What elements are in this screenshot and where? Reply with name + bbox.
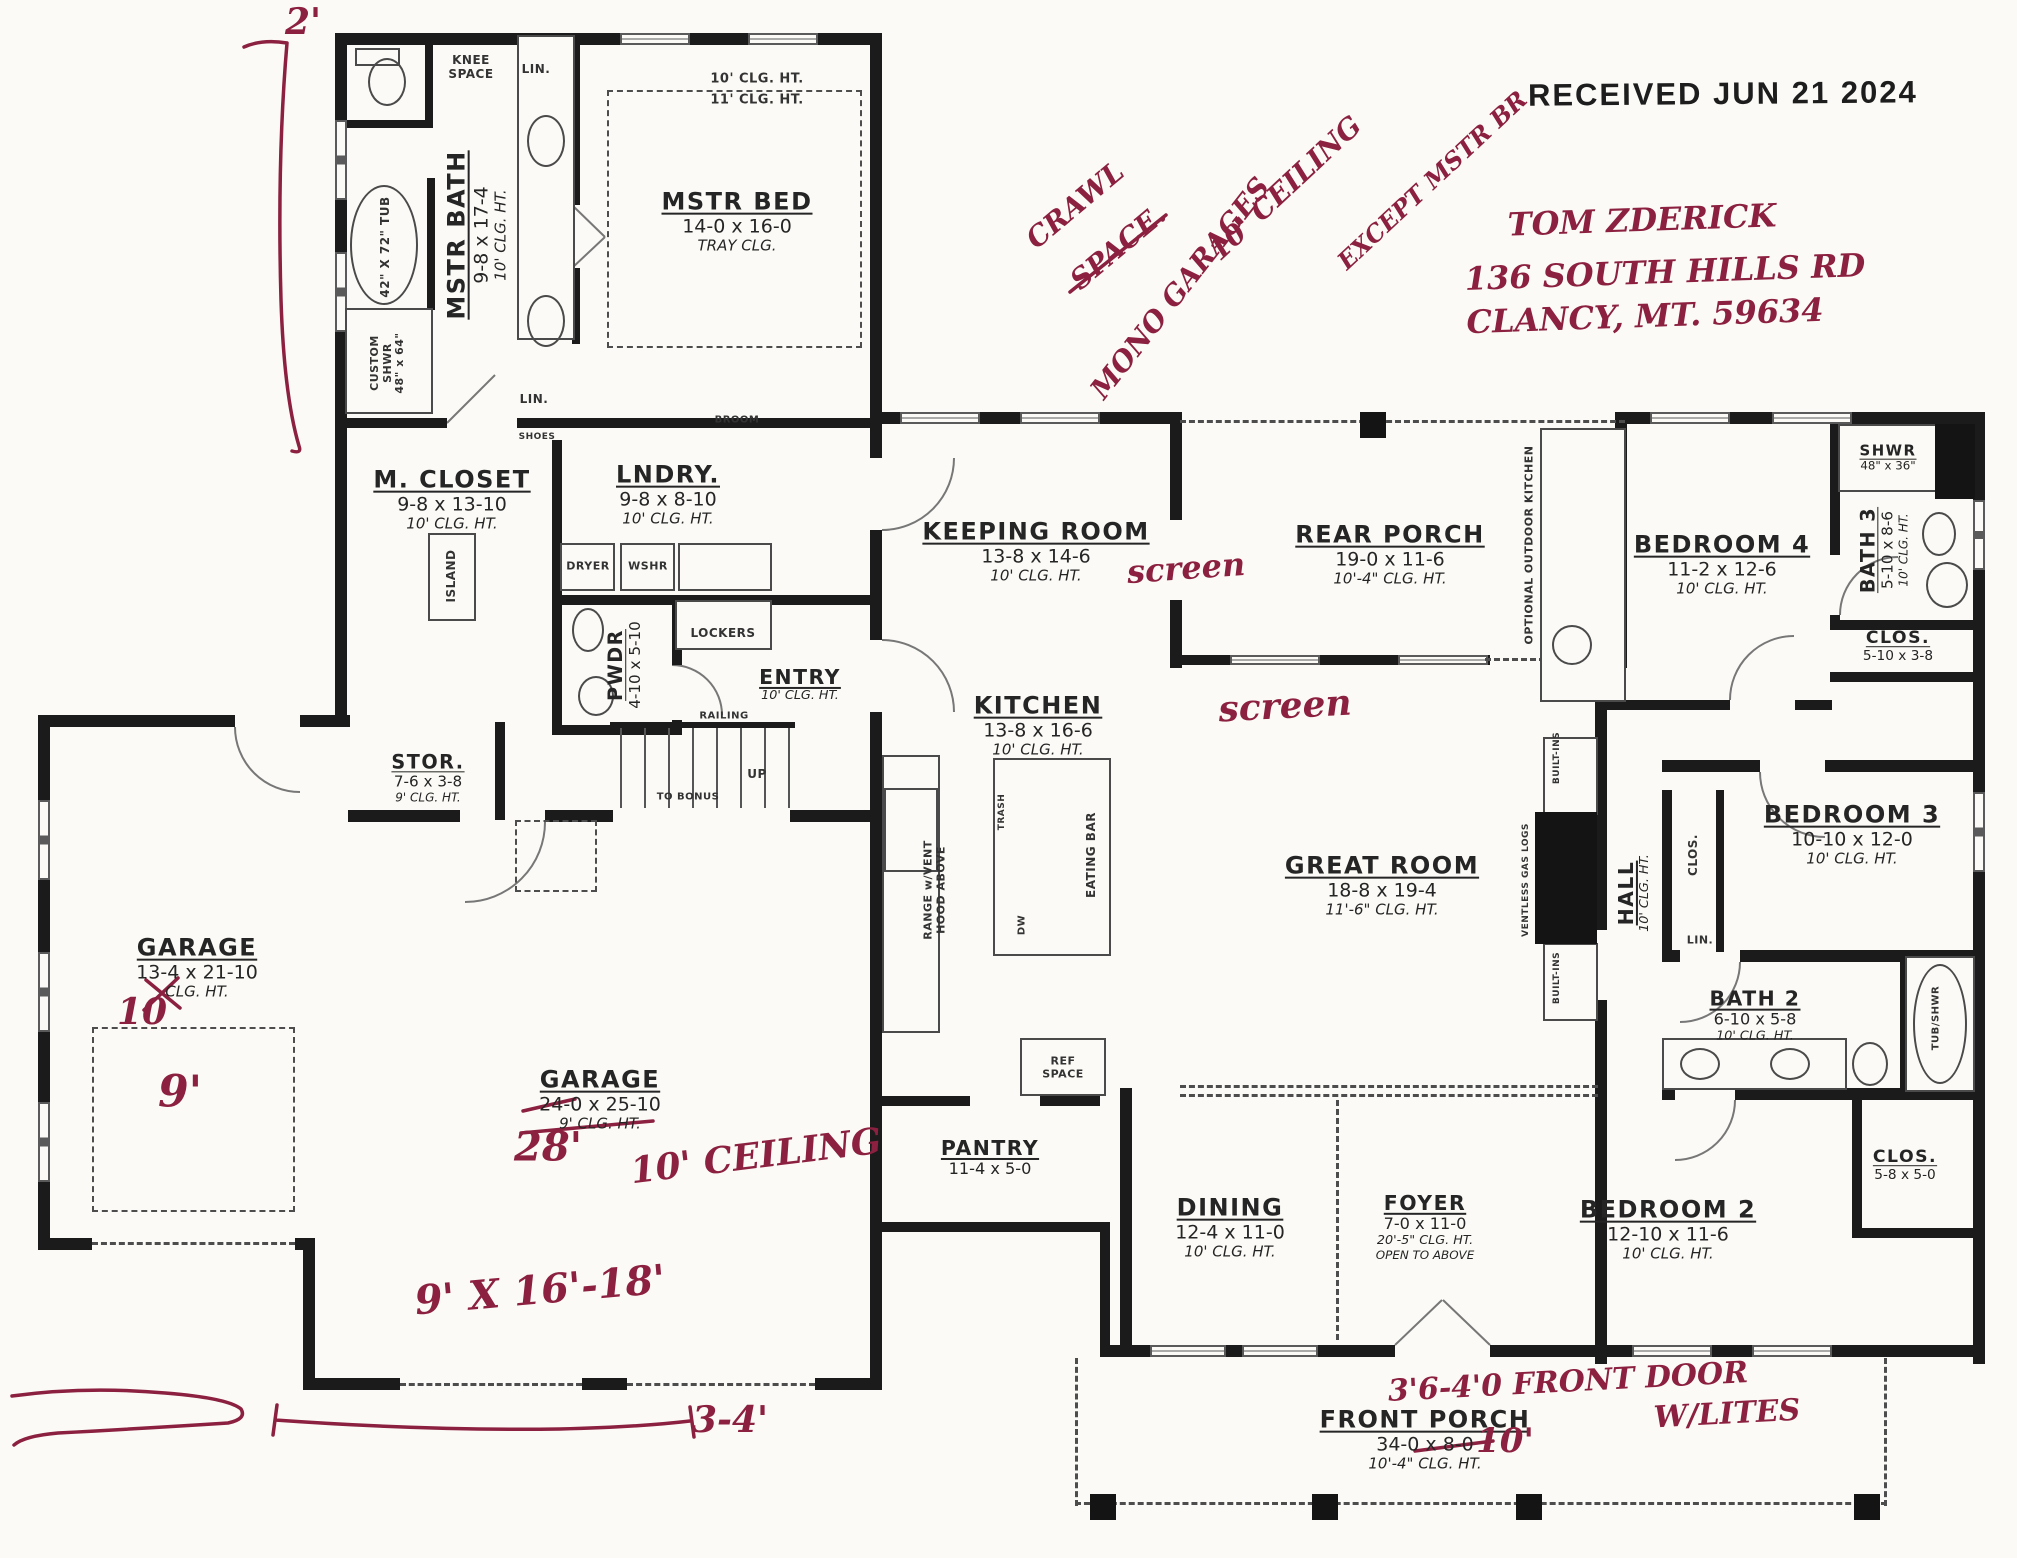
annotation-owner-name: TOM ZDERICK: [1507, 196, 1777, 243]
annotation-garage-door-size: 9' X 16'-18': [413, 1256, 668, 1325]
solid-mass: [1935, 424, 1975, 499]
room-label-dining: DINING12-4 x 11-010' CLG. HT.: [1175, 1195, 1285, 1262]
room-clg: 10' CLG. HT.: [1710, 1030, 1801, 1045]
label-up: UP: [747, 768, 767, 782]
fixture-oval: [572, 608, 604, 652]
label-island: ISLAND: [445, 549, 459, 602]
wall-segment: [38, 715, 235, 727]
window-marker: [38, 952, 50, 1032]
room-label-clos-bath3: CLOS.5-10 x 3-8: [1863, 629, 1933, 665]
label-ref-space: REF SPACE: [1042, 1055, 1084, 1080]
front-door-leaves: [1395, 1300, 1490, 1345]
door-arc: [1675, 1100, 1735, 1160]
room-name: FOYER: [1376, 1192, 1474, 1215]
fixture-oval: [527, 115, 565, 167]
room-clg: 10' CLG. HT.: [616, 511, 720, 528]
label-shoes: SHOES: [519, 432, 556, 442]
room-name: PANTRY: [941, 1137, 1039, 1160]
label-built-ins-bottom: BUILT-INS: [1552, 952, 1562, 1004]
window-marker: [620, 33, 690, 45]
label-custom-shwr: CUSTOM SHWR 48" x 64": [369, 332, 407, 393]
solid-mass: [1312, 1494, 1338, 1520]
annotation-screen-1: screen: [1126, 545, 1247, 591]
dashed-edge: [1884, 1358, 1888, 1506]
wall-segment: [610, 722, 795, 728]
wall-segment: [1852, 1098, 1862, 1233]
stair-tread: [788, 728, 790, 808]
annotation-screen-2: screen: [1217, 682, 1352, 731]
room-label-clos-bed2: CLOS.5-8 x 5-0: [1873, 1148, 1937, 1184]
wall-segment: [1662, 760, 1760, 772]
window-marker: [38, 1102, 50, 1182]
annotation-garage-left-10: 10: [117, 991, 167, 1033]
room-name: M. CLOSET: [373, 467, 530, 495]
label-built-ins-top: BUILT-INS: [1552, 732, 1562, 784]
room-dims: 10-10 x 12-0: [1764, 829, 1940, 851]
wall-segment: [1825, 760, 1976, 772]
room-clg: 9' CLG. HT.: [391, 791, 464, 805]
wall-segment: [38, 1238, 92, 1250]
room-clg: 10'-4" CLG. HT.: [1295, 571, 1484, 588]
room-dims: 6-10 x 5-8: [1710, 1011, 1801, 1030]
wall-segment: [1040, 1096, 1100, 1106]
window-marker: [1150, 1345, 1226, 1357]
wall-segment: [1662, 950, 1680, 962]
annotation-garage-28: 28': [514, 1124, 582, 1171]
room-dims: 5-10 x 3-8: [1863, 649, 1933, 665]
room-dims: 14-0 x 16-0: [662, 216, 813, 238]
room-dims: 19-0 x 11-6: [1295, 549, 1484, 571]
room-clg: 10' CLG. HT.: [1897, 507, 1911, 593]
room-clg: 10' CLG. HT.: [922, 568, 1149, 585]
room-name: BEDROOM 4: [1634, 532, 1810, 560]
label-railing: RAILING: [699, 710, 748, 722]
window-marker: [1242, 1345, 1318, 1357]
dashed-edge: [1180, 1085, 1598, 1089]
room-dims: 9-8 x 13-10: [373, 494, 530, 516]
room-name: STOR.: [391, 751, 464, 773]
window-marker: [38, 800, 50, 880]
label-wshr: WSHR: [628, 561, 668, 574]
label-dw: DW: [1016, 915, 1028, 935]
window-marker: [900, 412, 980, 424]
bottom-left-scribble: [12, 1390, 242, 1445]
door-arc: [235, 727, 300, 792]
room-dims: 18-8 x 19-4: [1285, 880, 1479, 902]
label-lockers: LOCKERS: [690, 627, 755, 641]
room-extra: OPEN TO ABOVE: [1376, 1249, 1474, 1263]
dashed-outline: [92, 1027, 295, 1212]
wall-segment: [882, 1096, 970, 1106]
window-marker: [1632, 1345, 1712, 1357]
window-marker: [1772, 412, 1852, 424]
room-label-rear-porch: REAR PORCH19-0 x 11-610'-4" CLG. HT.: [1295, 522, 1484, 589]
annotation-owner-street: 136 SOUTH HILLS RD: [1464, 246, 1866, 298]
label-range-vent: RANGE w/VENT HOOD ABOVE: [922, 840, 947, 939]
room-label-bath-2: BATH 26-10 x 5-810' CLG. HT.: [1710, 988, 1801, 1045]
solid-mass: [1516, 1494, 1542, 1520]
room-dims: 5-8 x 5-0: [1873, 1168, 1937, 1184]
room-dims: 4-10 x 5-10: [627, 621, 644, 709]
wall-segment: [790, 810, 882, 822]
door-arc: [882, 640, 954, 712]
label-optional-outdoor-kitchen: OPTIONAL OUTDOOR KITCHEN: [1524, 446, 1537, 645]
wall-segment: [870, 33, 882, 458]
room-clg: 10' CLG. HT.: [974, 742, 1103, 759]
room-clg: 20'-5" CLG. HT.: [1376, 1234, 1474, 1249]
wall-segment: [1795, 700, 1832, 710]
stair-tread: [620, 728, 622, 808]
wall-segment: [870, 530, 882, 640]
annotation-garage-left-9: 9': [158, 1067, 202, 1118]
room-dims: 7-6 x 3-8: [391, 773, 464, 790]
room-name: BEDROOM 3: [1764, 802, 1940, 830]
annotation-three-four: 3-4': [692, 1399, 768, 1441]
label-lin-top: LIN.: [522, 63, 551, 77]
room-name: BATH 3: [1857, 507, 1879, 593]
wall-segment: [335, 418, 447, 428]
door-arc: [1730, 636, 1794, 700]
fixture: [678, 543, 772, 591]
bottom-bracket-stroke: [273, 1405, 694, 1437]
room-label-bedroom-2: BEDROOM 212-10 x 11-610' CLG. HT.: [1580, 1197, 1756, 1264]
wall-segment: [815, 1378, 882, 1390]
room-clg: 10' CLG. HT.: [1175, 1244, 1285, 1261]
room-name: KITCHEN: [974, 693, 1103, 721]
annotation-porch-10: 10': [1476, 1421, 1534, 1461]
wall-segment: [552, 595, 680, 605]
annotation-two-ft: 2': [285, 1, 321, 43]
wall-segment: [348, 810, 460, 822]
annotation-w-lites: W/LITES: [1653, 1393, 1801, 1436]
room-label-bedroom-4: BEDROOM 411-2 x 12-610' CLG. HT.: [1634, 532, 1810, 599]
room-clg: 10' CLG. HT.: [759, 689, 841, 704]
wall-segment: [1662, 790, 1672, 962]
wall-segment: [495, 722, 505, 820]
room-name: HALL: [1615, 854, 1638, 932]
room-label-mstr-bed: MSTR BED14-0 x 16-0TRAY CLG.: [662, 189, 813, 256]
room-name: GREAT ROOM: [1285, 853, 1479, 881]
annotation-owner-city: CLANCY, MT. 59634: [1466, 291, 1824, 341]
wall-segment: [582, 1378, 627, 1390]
room-name: KEEPING ROOM: [922, 519, 1149, 547]
label-eating-bar: EATING BAR: [1085, 812, 1099, 898]
room-label-pwdr: PWDR4-10 x 5-10: [605, 621, 645, 709]
label-dryer: DRYER: [566, 561, 609, 574]
wall-segment: [343, 120, 433, 128]
label-tray-clg-10: 10' CLG. HT.: [710, 73, 803, 88]
room-name: SHWR: [1859, 443, 1916, 460]
room-label-great-room: GREAT ROOM18-8 x 19-411'-6" CLG. HT.: [1285, 853, 1479, 920]
label-to-bonus: TO BONUS: [657, 791, 720, 803]
wall-segment: [303, 1238, 315, 1390]
solid-mass: [1535, 812, 1597, 944]
room-dims: 7-0 x 11-0: [1376, 1215, 1474, 1234]
room-name: GARAGE: [136, 935, 258, 963]
wall-segment: [300, 715, 350, 727]
room-name: BATH 2: [1710, 988, 1801, 1011]
room-label-mstr-bath: MSTR BATH9-8 x 17-410' CLG. HT.: [444, 150, 511, 319]
master-double-door: [572, 205, 605, 268]
fixture-oval: [1852, 1042, 1888, 1086]
room-clg: TRAY CLG.: [662, 238, 813, 255]
room-dims: 11-4 x 5-0: [941, 1160, 1039, 1179]
room-clg: 10' CLG. HT.: [373, 516, 530, 533]
wall-segment: [427, 178, 435, 310]
solid-mass: [1854, 1494, 1880, 1520]
solid-mass: [1090, 1494, 1116, 1520]
room-label-kitchen: KITCHEN13-8 x 16-610' CLG. HT.: [974, 693, 1103, 760]
wall-segment: [1716, 790, 1724, 952]
received-stamp: RECEIVED JUN 21 2024: [1528, 74, 1918, 113]
label-clos-bed3: CLOS.: [1687, 834, 1701, 876]
room-dims: 13-8 x 16-6: [974, 720, 1103, 742]
room-label-keeping-room: KEEPING ROOM13-8 x 14-610' CLG. HT.: [922, 519, 1149, 586]
room-dims: 13-8 x 14-6: [922, 546, 1149, 568]
dashed-edge: [92, 1242, 295, 1246]
room-label-m-closet: M. CLOSET9-8 x 13-1010' CLG. HT.: [373, 467, 530, 534]
label-ventless-gas-logs: VENTLESS GAS LOGS: [1521, 823, 1531, 937]
window-marker: [1020, 412, 1100, 424]
fixture-oval: [527, 295, 565, 347]
closet-door-leaf: [447, 375, 495, 423]
fixture-oval: [368, 58, 406, 106]
wall-segment: [1170, 412, 1182, 520]
label-broom: BROOM: [715, 414, 760, 426]
room-clg: 10' CLG. HT.: [493, 150, 510, 319]
room-name: MSTR BATH: [444, 150, 472, 319]
dashed-edge: [1336, 1100, 1340, 1340]
room-clg: 10' CLG. HT.: [1634, 581, 1810, 598]
fixture: [675, 600, 772, 650]
wall-segment: [425, 43, 433, 128]
dashed-edge: [1075, 1502, 1887, 1506]
room-dims: 12-4 x 11-0: [1175, 1222, 1285, 1244]
room-name: BEDROOM 2: [1580, 1197, 1756, 1225]
fixture-oval: [1680, 1048, 1720, 1080]
room-dims: 5-10 x 8-6: [1879, 507, 1896, 593]
room-name: CLOS.: [1873, 1148, 1937, 1168]
dashed-edge: [1485, 658, 1545, 662]
label-trash: TRASH: [997, 794, 1007, 831]
room-label-shwr-bath3: SHWR48" x 36": [1859, 443, 1916, 474]
room-label-stor: STOR.7-6 x 3-89' CLG. HT.: [391, 751, 464, 804]
fixture-oval: [1770, 1048, 1810, 1080]
room-name: DINING: [1175, 1195, 1285, 1223]
room-name: LNDRY.: [616, 462, 720, 490]
room-dims: 11-2 x 12-6: [1634, 559, 1810, 581]
window-marker: [335, 120, 347, 200]
room-name: MSTR BED: [662, 189, 813, 217]
door-arc: [672, 665, 722, 715]
annotation-except-mstr: EXCEPT MSTR BR: [1331, 85, 1532, 276]
stair-tread: [740, 728, 742, 808]
label-tub-shwr: TUB/SHWR: [1930, 986, 1942, 1051]
room-label-bath-3: BATH 35-10 x 8-610' CLG. HT.: [1857, 507, 1910, 593]
wall-segment: [1830, 672, 1975, 682]
room-label-pantry: PANTRY11-4 x 5-0: [941, 1137, 1039, 1179]
room-clg: 10' CLG. HT.: [1638, 854, 1653, 932]
room-dims: 9-8 x 8-10: [616, 489, 720, 511]
label-lin-hall: LIN.: [1687, 935, 1714, 948]
label-lin-mid: LIN.: [520, 393, 549, 407]
wall-segment: [552, 595, 562, 735]
room-dims: 9-8 x 17-4: [471, 150, 493, 319]
room-label-hall: HALL10' CLG. HT.: [1615, 854, 1653, 932]
solid-mass: [1360, 412, 1386, 438]
window-marker: [1398, 655, 1488, 665]
dashed-edge: [400, 1383, 582, 1387]
label-tray-clg-11: 11' CLG. HT.: [710, 94, 803, 109]
floor-plan-canvas: RECEIVED JUN 21 2024 MSTR B: [0, 0, 2017, 1558]
wall-segment: [517, 418, 882, 428]
room-name: REAR PORCH: [1295, 522, 1484, 550]
room-label-foyer: FOYER7-0 x 11-020'-5" CLG. HT.OPEN TO AB…: [1376, 1192, 1474, 1262]
room-label-bedroom-3: BEDROOM 310-10 x 12-010' CLG. HT.: [1764, 802, 1940, 869]
room-dims: 24-0 x 25-10: [539, 1094, 661, 1116]
room-dims: 12-10 x 11-6: [1580, 1224, 1756, 1246]
window-marker: [1973, 500, 1985, 570]
room-clg: 10' CLG. HT.: [1764, 851, 1940, 868]
room-label-entry: ENTRY10' CLG. HT.: [759, 666, 841, 704]
dashed-edge: [1180, 420, 1625, 424]
fixture-oval: [1926, 562, 1968, 608]
room-name: CLOS.: [1863, 629, 1933, 649]
room-name: PWDR: [605, 621, 627, 709]
room-dims: 13-4 x 21-10: [136, 962, 258, 984]
dashed-outline: [515, 820, 597, 892]
room-clg: 11'-6" CLG. HT.: [1285, 902, 1479, 919]
dashed-edge: [1075, 1358, 1079, 1506]
stair-tread: [644, 728, 646, 808]
wall-segment: [1852, 1228, 1976, 1238]
window-marker: [748, 33, 818, 45]
room-clg: 10' CLG. HT.: [1580, 1246, 1756, 1263]
label-knee-space: KNEE SPACE: [448, 54, 493, 82]
window-marker: [1230, 655, 1320, 665]
left-bracket-stroke: [244, 42, 300, 452]
annotation-garage-10-ceiling: 10' CEILING: [628, 1120, 884, 1192]
room-dims: 48" x 36": [1859, 460, 1916, 474]
room-label-lndry: LNDRY.9-8 x 8-1010' CLG. HT.: [616, 462, 720, 529]
wall-segment: [870, 1222, 1110, 1232]
wall-segment: [303, 1378, 400, 1390]
room-name: GARAGE: [539, 1067, 661, 1095]
dashed-edge: [627, 1383, 815, 1387]
wall-segment: [1120, 1088, 1132, 1352]
room-name: ENTRY: [759, 666, 841, 689]
wall-segment: [1100, 1222, 1110, 1352]
label-tub-42x72: 42" X 72" TUB: [379, 196, 393, 297]
window-marker: [1752, 1345, 1832, 1357]
dashed-edge: [1180, 1094, 1598, 1098]
fixture-oval: [1552, 625, 1592, 665]
window-marker: [1650, 412, 1730, 424]
window-marker: [1973, 792, 1985, 872]
fixture-oval: [1922, 512, 1956, 556]
